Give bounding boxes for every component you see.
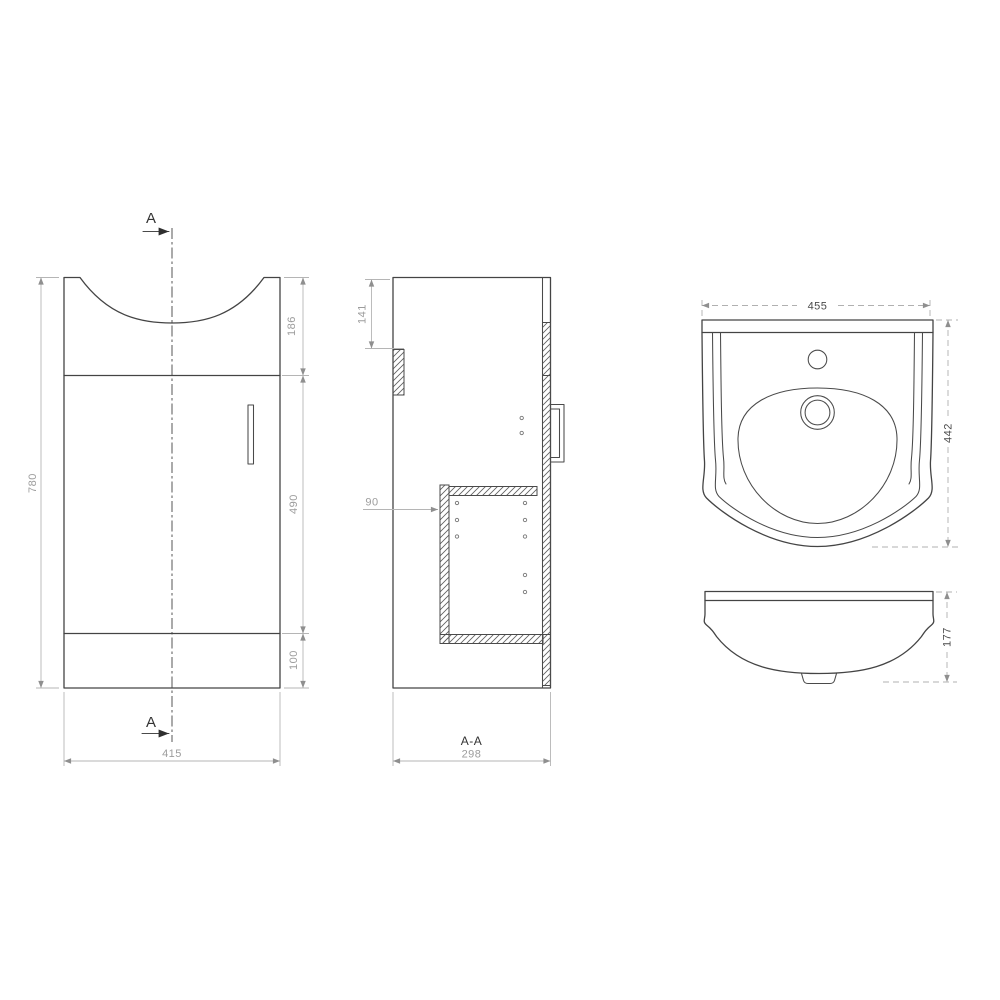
section-label-bottom: A — [146, 714, 156, 731]
drain-outer — [801, 396, 835, 430]
basin-bowl-outline — [738, 388, 897, 524]
section-fixing-holes — [455, 416, 526, 593]
section-view: 141 90 A-A 298 — [357, 278, 565, 767]
section-top-shelf-hatch — [449, 487, 537, 496]
section-plinth-hatch — [543, 635, 551, 686]
section-title: A-A — [461, 734, 483, 748]
drain-inner — [805, 400, 830, 425]
section-back-rail-hatch — [393, 350, 404, 396]
basin-back-ledge — [702, 320, 933, 333]
basin-top-view: 455 442 — [702, 299, 958, 547]
section-fascia-hatch — [543, 323, 551, 376]
dim-780-extensions — [36, 278, 59, 689]
dim-442-label: 442 — [943, 423, 955, 443]
dim-186-label: 186 — [286, 316, 298, 336]
basin-outer-outline — [702, 333, 933, 547]
basin-rim-inner-line — [713, 333, 923, 538]
basin-front-rim — [705, 592, 933, 601]
section-back-panel-hatch — [440, 485, 449, 644]
basin-rim-inner-line-right — [909, 333, 915, 485]
dim-415-label: 415 — [162, 748, 182, 760]
section-door-handle — [551, 405, 565, 463]
dim-298-label: 298 — [462, 749, 482, 761]
front-view: A A 780 186 490 100 415 — [27, 210, 309, 766]
dim-141-label: 141 — [357, 304, 369, 324]
basin-rim-inner-line-left — [721, 333, 727, 485]
tap-hole — [808, 350, 827, 369]
dim-100-label: 100 — [288, 650, 300, 670]
basin-front-bowl — [704, 601, 934, 674]
section-outer-outline — [393, 278, 551, 689]
dim-141-extensions — [365, 280, 404, 349]
dim-490-label: 490 — [288, 494, 300, 514]
section-bottom-shelf-hatch — [440, 635, 543, 644]
basin-front-view: 177 — [704, 592, 957, 684]
dim-455-label: 455 — [808, 301, 828, 313]
dim-right-extensions — [282, 278, 309, 689]
vanity-unit-drawing: A A 780 186 490 100 415 — [0, 0, 1000, 1000]
basin-front-drain-boss — [802, 674, 837, 684]
section-door-hatch — [543, 376, 551, 635]
section-label-top: A — [146, 210, 156, 227]
technical-drawing-sheet: A A 780 186 490 100 415 — [0, 0, 1000, 1000]
dim-780-label: 780 — [27, 473, 39, 493]
front-door-handle — [248, 405, 254, 464]
dim-177-label: 177 — [942, 627, 954, 647]
dim-90-label: 90 — [365, 497, 378, 509]
